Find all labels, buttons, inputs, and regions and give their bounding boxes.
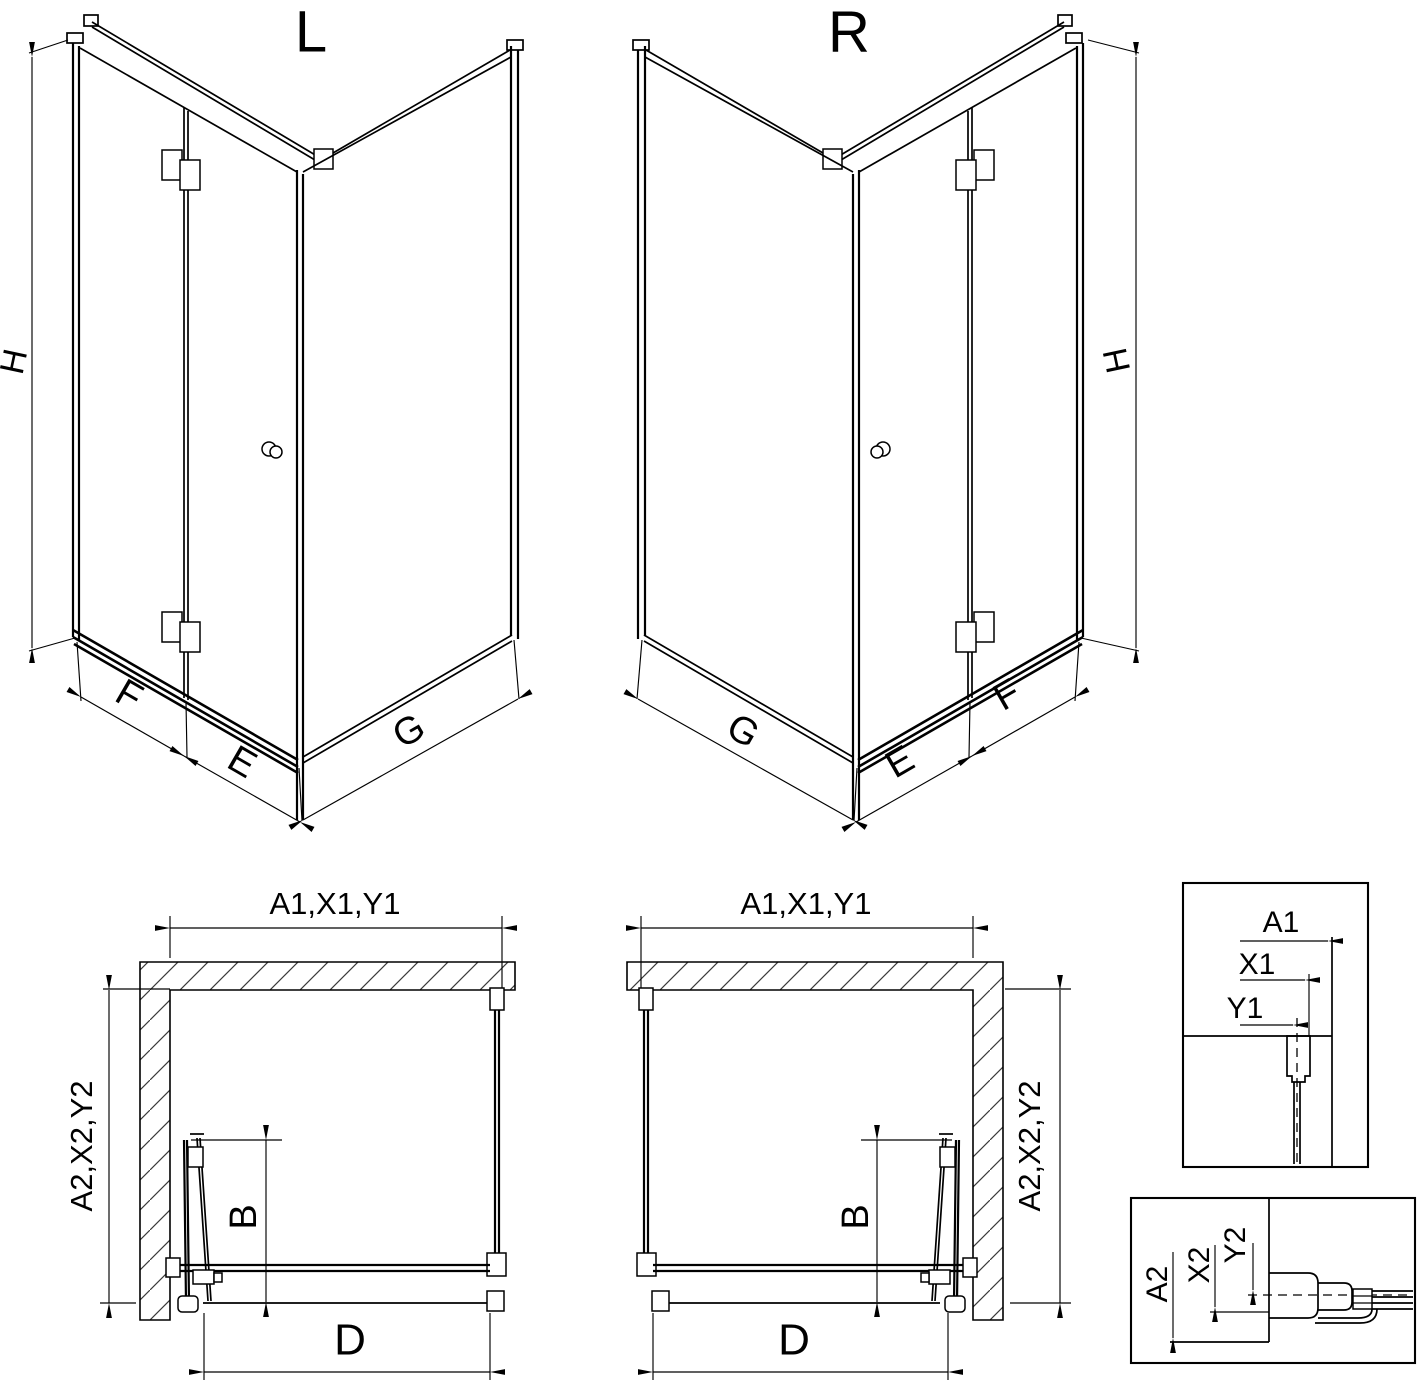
- dim-label-a2x2y2-left: A2,X2,Y2: [64, 1081, 99, 1212]
- detail-dim-x1: X1: [1239, 948, 1276, 981]
- hinge-bottom-plate: [180, 622, 200, 652]
- dim-label-b-right: B: [835, 1204, 877, 1229]
- hinge-top: [162, 150, 182, 180]
- profile-gasket: [1315, 1309, 1377, 1323]
- wall-bracket: [166, 1258, 180, 1277]
- door-foot: [945, 1296, 965, 1312]
- hinge-top: [974, 150, 994, 180]
- detail-dim-x2: X2: [1183, 1247, 1216, 1284]
- plan-view-right: A1,X1,Y1 A2,X2,Y2 B D: [627, 886, 1071, 1380]
- shower-enclosure-diagram: L H F E: [0, 0, 1426, 1397]
- wall-profile: [639, 988, 653, 1010]
- detail-box-top: A1 X1 Y1: [1183, 883, 1368, 1167]
- wall-profile-section: [1287, 1036, 1310, 1082]
- door-knob-face: [270, 446, 282, 458]
- detail-box-bottom: A2 X2 Y2: [1131, 1198, 1415, 1363]
- dim-label-h-right: H: [1096, 344, 1138, 376]
- hinge-top-plate: [956, 160, 976, 190]
- hinge-bottom-plate: [956, 622, 976, 652]
- door-guide-hw: [929, 1270, 950, 1284]
- track-end-bracket: [487, 1291, 504, 1311]
- detail-dim-a2: A2: [1141, 1266, 1174, 1303]
- wall-section: [140, 962, 515, 1320]
- post-cap: [67, 33, 83, 43]
- iso-view-left: L H F E: [0, 0, 523, 822]
- track-end-bracket: [652, 1291, 669, 1311]
- bar-connector: [314, 149, 333, 169]
- hinge-top-plate: [180, 160, 200, 190]
- dim-label-g-left: G: [386, 706, 433, 757]
- door-foot: [178, 1296, 198, 1312]
- dim-label-h-left: H: [0, 346, 35, 378]
- plan-view-left: A1,X1,Y1 A2,X2,Y2 B D: [64, 886, 515, 1380]
- wall-bracket: [963, 1258, 977, 1277]
- detail-dim-y1: Y1: [1227, 992, 1264, 1025]
- profile-clamp-section: [1318, 1283, 1352, 1310]
- technical-drawing-page: L H F E: [0, 0, 1426, 1397]
- door-guide-hw: [193, 1270, 214, 1284]
- dim-label-d-right: D: [778, 1316, 810, 1365]
- hinge-bottom: [974, 612, 994, 642]
- dim-label-a1x1y1-right: A1,X1,Y1: [741, 886, 872, 921]
- variant-label-l: L: [295, 0, 327, 64]
- glass-clamp: [1353, 1289, 1372, 1309]
- door-pivot-hw: [188, 1147, 203, 1167]
- detail-dim-y2: Y2: [1219, 1227, 1252, 1264]
- dim-label-b-left: B: [223, 1204, 265, 1229]
- door-knob-face: [871, 446, 883, 458]
- hinge-bottom: [162, 612, 182, 642]
- dim-label-d-left: D: [334, 1316, 366, 1365]
- dim-label-e-left: E: [221, 738, 264, 787]
- detail-dim-a1: A1: [1263, 906, 1300, 939]
- door-guide-hw2: [921, 1273, 929, 1282]
- door-guide-hw2: [214, 1273, 222, 1282]
- dim-label-a1x1y1-left: A1,X1,Y1: [270, 886, 401, 921]
- bar-connector: [823, 149, 842, 169]
- variant-label-r: R: [828, 0, 870, 64]
- iso-view-right: R H F E G: [633, 0, 1139, 822]
- wall-profile: [490, 988, 504, 1010]
- dim-label-a2x2y2-right: A2,X2,Y2: [1012, 1081, 1047, 1212]
- door-pivot-hw: [940, 1147, 955, 1167]
- dim-label-f-left: F: [108, 671, 149, 719]
